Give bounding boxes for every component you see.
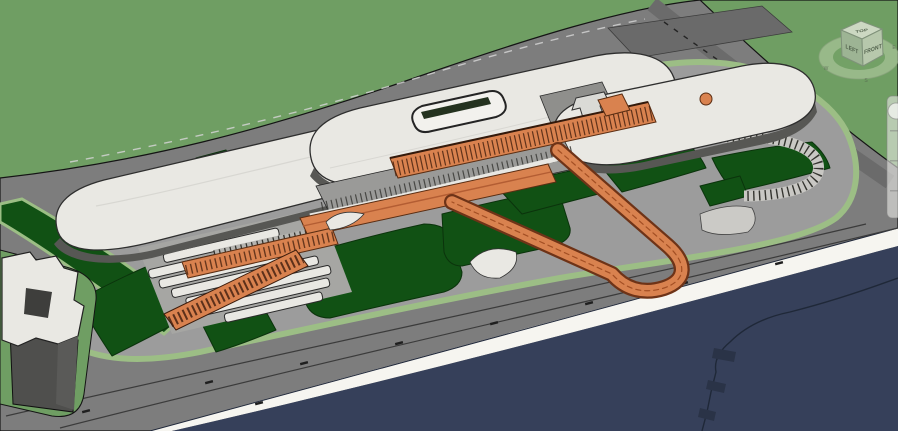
viewcube-compass-west[interactable]: W (824, 66, 829, 72)
small-office-building[interactable] (2, 252, 84, 412)
nav-divider (890, 130, 898, 132)
navigation-bar[interactable] (887, 96, 898, 218)
model-viewport[interactable]: TOP LEFT FRONT W S E (0, 0, 898, 431)
orange-roof-patch (700, 93, 712, 105)
nav-divider (890, 190, 898, 192)
nav-divider (890, 160, 898, 162)
site-plan-3d-view[interactable]: TOP LEFT FRONT W S E (0, 0, 898, 431)
office-courtyard (24, 288, 52, 318)
